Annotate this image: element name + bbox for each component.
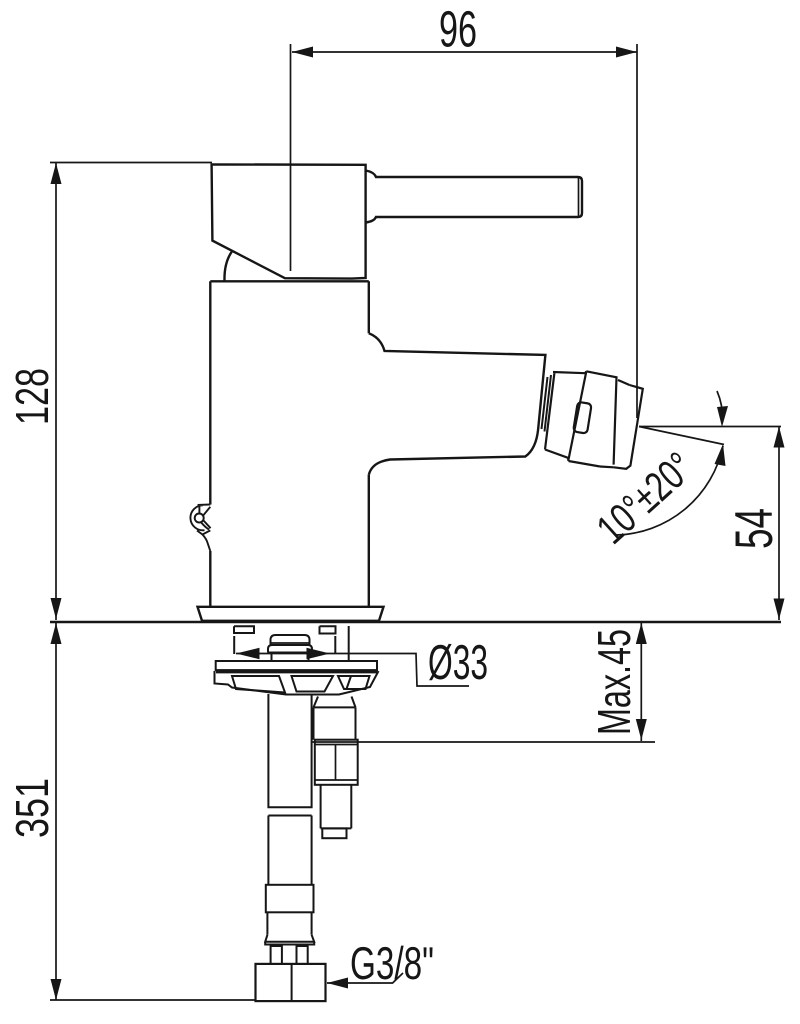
svg-text:Max.45: Max.45 [588,629,640,735]
svg-text:128: 128 [6,368,58,425]
svg-text:Ø33: Ø33 [428,636,488,690]
svg-text:G3/8": G3/8" [350,937,434,989]
svg-text:96: 96 [439,1,477,58]
svg-text:351: 351 [6,778,58,838]
svg-text:54: 54 [725,508,784,549]
